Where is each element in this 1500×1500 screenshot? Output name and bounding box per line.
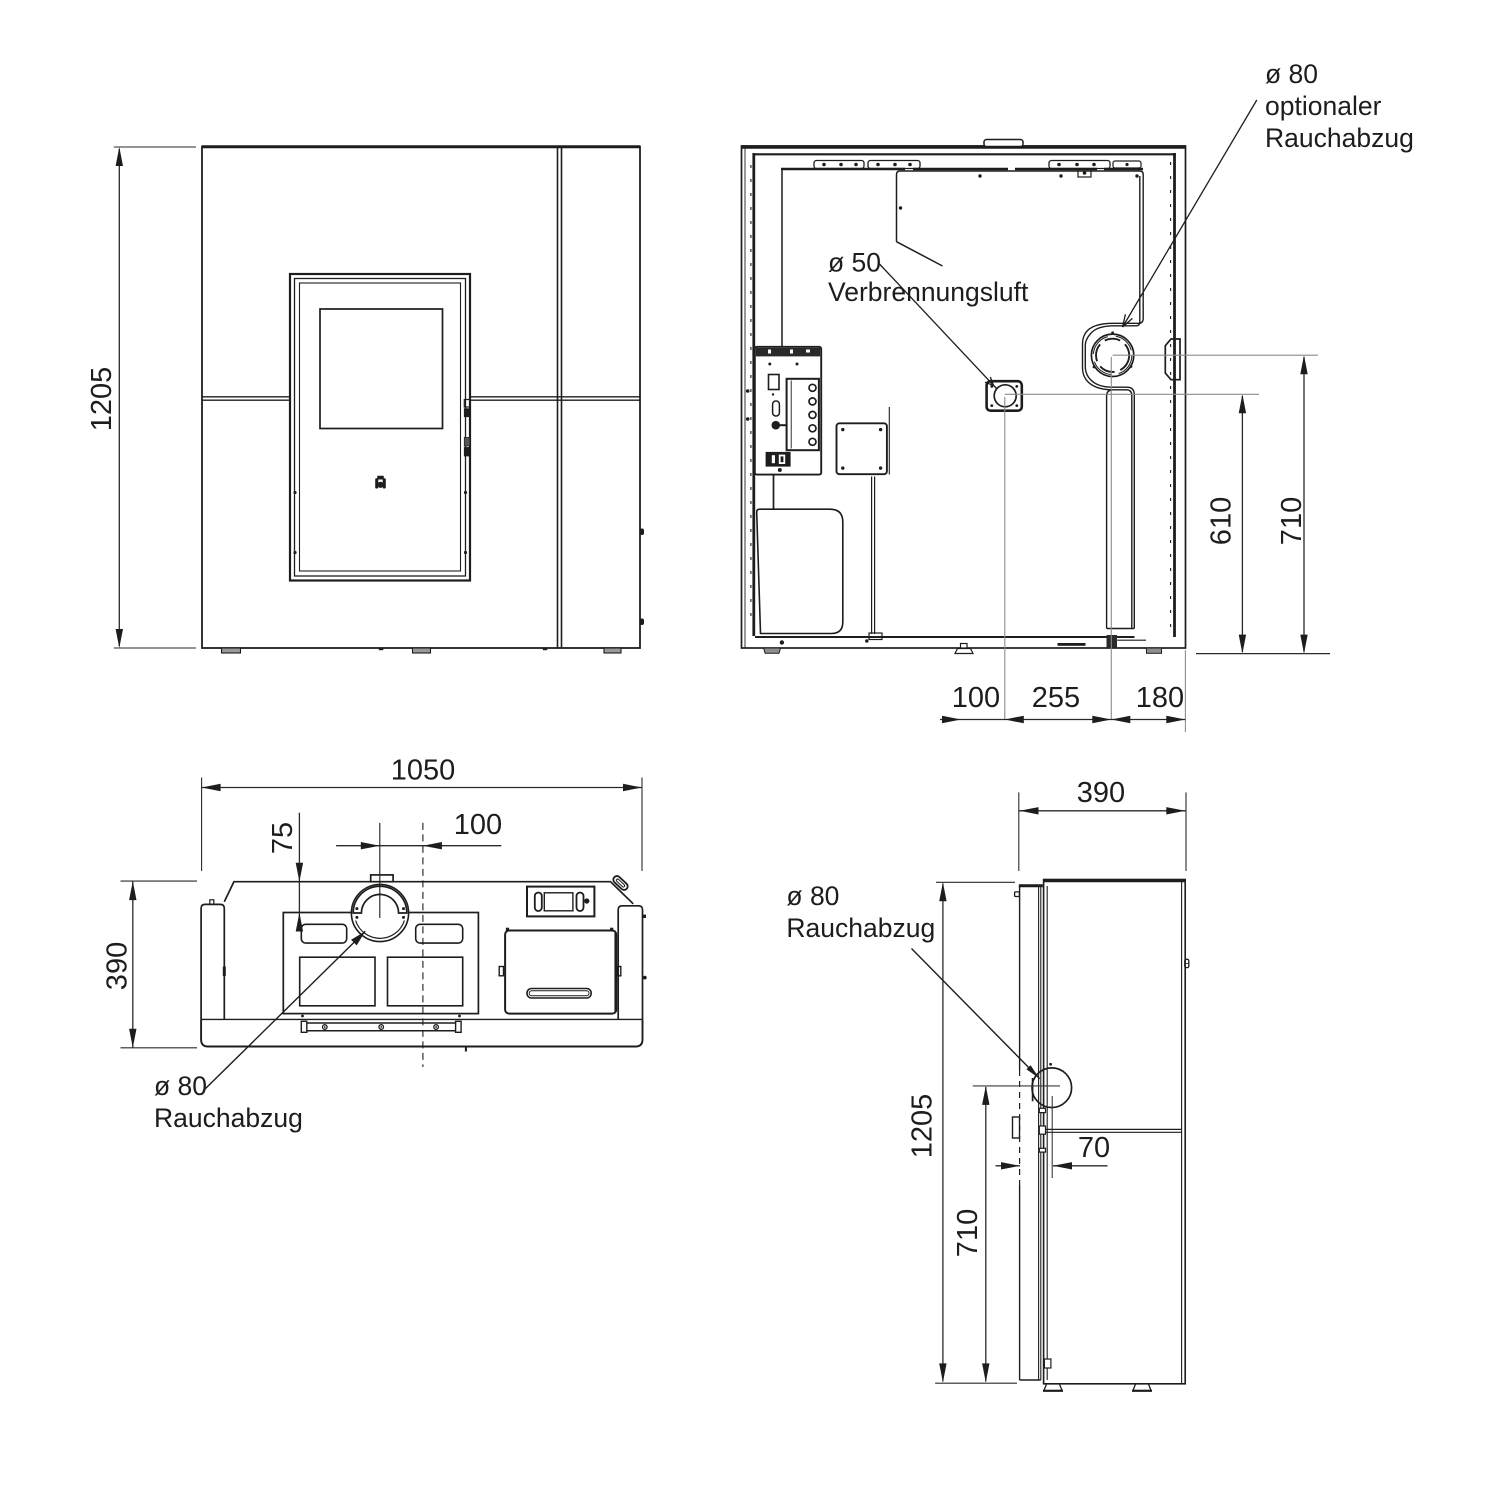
svg-text:ø 80: ø 80 [786, 881, 839, 911]
svg-text:75: 75 [267, 822, 299, 854]
svg-text:100: 100 [454, 809, 502, 841]
svg-text:Verbrennungsluft: Verbrennungsluft [828, 277, 1029, 307]
svg-text:390: 390 [1077, 777, 1125, 809]
svg-text:390: 390 [102, 942, 134, 990]
svg-text:Rauchabzug: Rauchabzug [1265, 123, 1414, 153]
svg-text:Rauchabzug: Rauchabzug [154, 1103, 303, 1133]
svg-text:optionaler: optionaler [1265, 91, 1382, 121]
svg-text:255: 255 [1032, 682, 1080, 714]
svg-text:70: 70 [1078, 1132, 1110, 1164]
svg-text:1205: 1205 [86, 367, 118, 432]
svg-text:Rauchabzug: Rauchabzug [786, 913, 935, 943]
svg-text:180: 180 [1136, 682, 1184, 714]
svg-text:1205: 1205 [907, 1094, 939, 1159]
svg-text:ø 50: ø 50 [828, 248, 881, 278]
svg-text:ø 80: ø 80 [1265, 59, 1318, 89]
svg-text:100: 100 [952, 682, 1000, 714]
svg-text:ø 80: ø 80 [154, 1071, 207, 1101]
svg-text:710: 710 [1276, 497, 1308, 545]
svg-text:710: 710 [952, 1209, 984, 1257]
svg-text:1050: 1050 [391, 755, 456, 787]
svg-text:610: 610 [1206, 497, 1238, 545]
